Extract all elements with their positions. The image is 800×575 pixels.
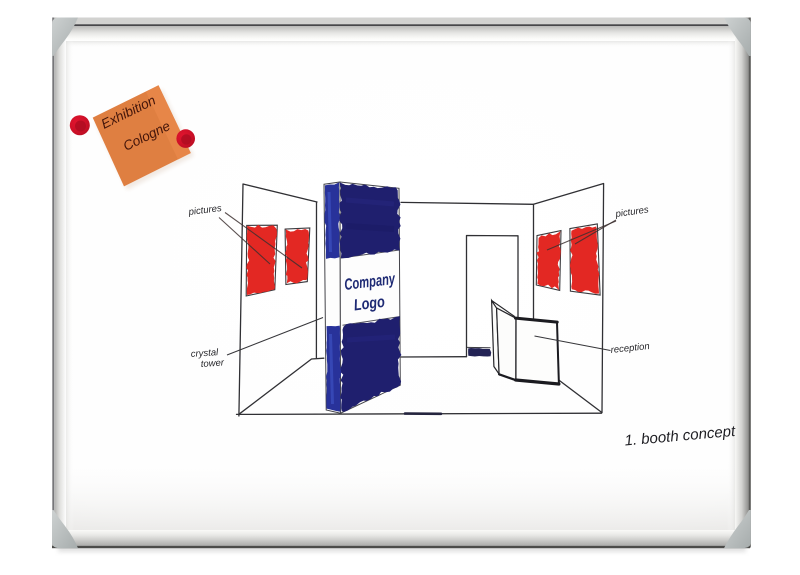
svg-text:tower: tower [200, 357, 225, 370]
